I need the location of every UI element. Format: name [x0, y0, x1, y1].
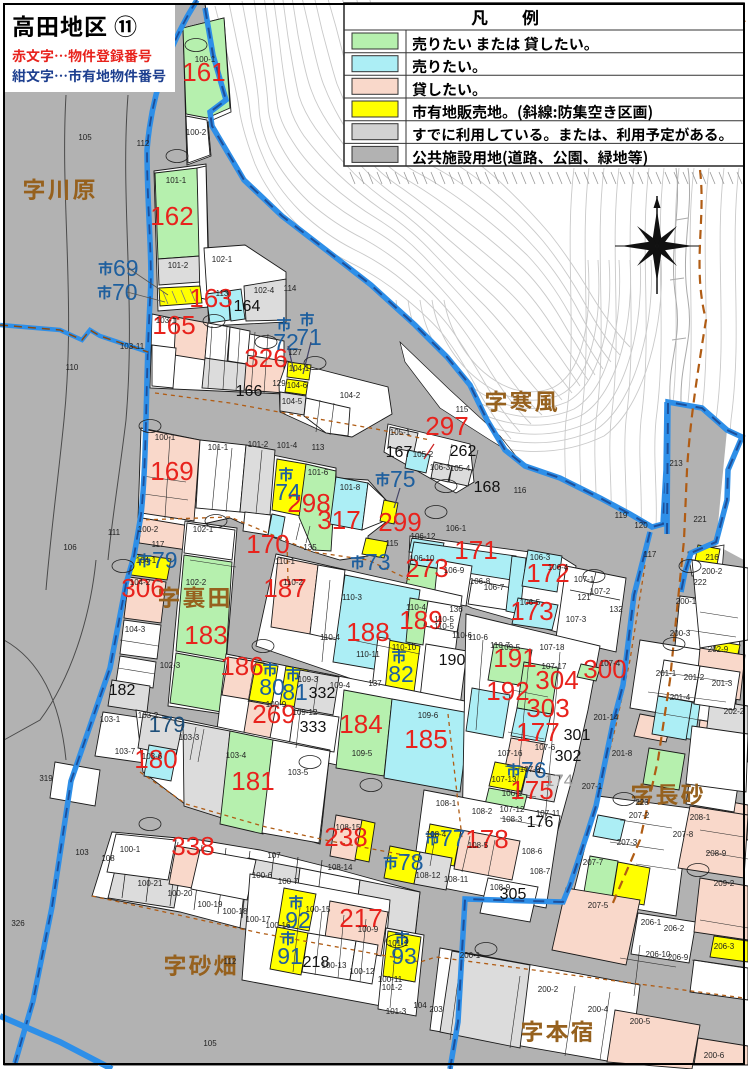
- svg-text:100-15: 100-15: [306, 905, 331, 914]
- svg-text:108-15: 108-15: [336, 823, 361, 832]
- svg-text:109-5: 109-5: [352, 749, 373, 758]
- svg-text:110-1: 110-1: [275, 557, 295, 566]
- svg-text:188: 188: [346, 617, 389, 647]
- svg-text:市: 市: [375, 469, 390, 490]
- svg-text:297: 297: [425, 411, 468, 441]
- svg-text:216: 216: [705, 553, 719, 562]
- svg-text:167: 167: [386, 444, 413, 461]
- svg-text:207-5: 207-5: [588, 901, 609, 910]
- svg-text:163: 163: [189, 283, 232, 313]
- svg-text:119: 119: [615, 511, 628, 520]
- svg-text:75: 75: [390, 466, 416, 492]
- svg-text:107-13: 107-13: [492, 775, 517, 784]
- svg-text:106-3: 106-3: [430, 463, 451, 472]
- svg-text:120: 120: [634, 521, 648, 530]
- svg-text:117: 117: [152, 540, 165, 549]
- svg-text:103-1: 103-1: [156, 316, 177, 325]
- svg-text:109-4: 109-4: [330, 681, 351, 690]
- svg-text:108-5: 108-5: [468, 841, 489, 850]
- svg-text:紺文字…市有地物件番号: 紺文字…市有地物件番号: [12, 66, 166, 86]
- svg-text:208-9: 208-9: [706, 849, 727, 858]
- svg-text:165: 165: [152, 310, 195, 340]
- svg-text:136: 136: [449, 605, 463, 614]
- svg-text:117: 117: [644, 550, 657, 559]
- svg-text:売りたい。: 売りたい。: [412, 56, 487, 77]
- svg-text:102-1: 102-1: [212, 255, 233, 264]
- svg-text:69: 69: [113, 255, 139, 281]
- svg-text:106-7: 106-7: [484, 583, 505, 592]
- svg-text:106-9: 106-9: [444, 566, 465, 575]
- svg-text:207-7: 207-7: [583, 858, 604, 867]
- svg-text:192: 192: [486, 676, 529, 706]
- svg-text:105-1: 105-1: [390, 428, 411, 437]
- svg-text:108-11: 108-11: [444, 875, 469, 884]
- svg-text:104-1: 104-1: [136, 556, 157, 565]
- svg-text:赤文字…物件登録番号: 赤文字…物件登録番号: [12, 46, 152, 66]
- svg-text:107-11: 107-11: [536, 809, 561, 818]
- svg-text:107-2: 107-2: [590, 587, 611, 596]
- svg-text:101-3: 101-3: [386, 1007, 407, 1016]
- svg-text:101-2: 101-2: [248, 440, 269, 449]
- svg-text:104-6: 104-6: [287, 381, 308, 390]
- svg-text:110-5: 110-5: [434, 622, 454, 631]
- svg-text:106-4: 106-4: [548, 563, 569, 572]
- svg-text:100-18: 100-18: [223, 907, 248, 916]
- svg-text:106: 106: [63, 543, 77, 552]
- svg-text:209-2: 209-2: [714, 879, 735, 888]
- svg-text:106-1: 106-1: [446, 524, 467, 533]
- svg-text:206-1: 206-1: [641, 918, 662, 927]
- svg-text:221: 221: [693, 515, 707, 524]
- svg-text:107-6: 107-6: [535, 743, 556, 752]
- svg-text:200-2: 200-2: [538, 985, 559, 994]
- svg-text:200-4: 200-4: [588, 1005, 609, 1014]
- svg-text:201-4: 201-4: [670, 693, 691, 702]
- svg-text:市: 市: [350, 552, 365, 573]
- svg-text:182: 182: [109, 682, 136, 699]
- svg-text:201-2: 201-2: [684, 673, 705, 682]
- svg-text:100-20: 100-20: [168, 889, 193, 898]
- svg-text:183: 183: [184, 620, 227, 650]
- svg-text:186: 186: [220, 651, 263, 681]
- svg-text:100-12: 100-12: [350, 967, 375, 976]
- svg-text:112: 112: [137, 139, 150, 148]
- svg-text:302: 302: [555, 748, 582, 765]
- svg-text:字本宿: 字本宿: [521, 1013, 596, 1047]
- svg-text:74: 74: [275, 479, 301, 505]
- svg-text:333: 333: [300, 719, 327, 736]
- svg-text:108-14: 108-14: [328, 863, 353, 872]
- svg-text:108-12: 108-12: [416, 871, 441, 880]
- svg-text:104: 104: [413, 1001, 427, 1010]
- svg-text:202-2: 202-2: [724, 707, 745, 716]
- svg-text:101-2: 101-2: [168, 261, 189, 270]
- svg-text:105: 105: [203, 1039, 217, 1048]
- svg-text:105-2: 105-2: [413, 450, 434, 459]
- svg-text:106-3: 106-3: [530, 553, 551, 562]
- svg-text:109-12: 109-12: [293, 708, 318, 717]
- svg-text:338: 338: [171, 831, 214, 861]
- svg-text:公共施設用地(道路、公園、緑地等): 公共施設用地(道路、公園、緑地等): [412, 147, 648, 168]
- svg-text:132: 132: [609, 605, 623, 614]
- svg-text:201-8: 201-8: [612, 749, 633, 758]
- svg-text:168: 168: [474, 479, 501, 496]
- svg-text:164: 164: [234, 298, 261, 315]
- svg-text:103-2: 103-2: [138, 711, 159, 720]
- svg-text:170: 170: [246, 529, 289, 559]
- svg-text:91: 91: [277, 943, 303, 969]
- svg-text:104-3: 104-3: [125, 625, 146, 634]
- svg-text:107-17: 107-17: [542, 662, 567, 671]
- svg-text:⑪: ⑪: [114, 8, 137, 42]
- svg-text:103: 103: [75, 848, 89, 857]
- svg-text:184: 184: [339, 709, 382, 739]
- svg-text:109-5: 109-5: [500, 643, 521, 652]
- svg-text:113: 113: [216, 289, 229, 298]
- svg-text:すでに利用している。または、利用予定がある。: すでに利用している。または、利用予定がある。: [412, 124, 733, 145]
- svg-text:200-1: 200-1: [460, 951, 481, 960]
- svg-text:売りたい または 貸したい。: 売りたい または 貸したい。: [412, 34, 599, 55]
- svg-text:103-6: 103-6: [142, 752, 163, 761]
- svg-text:71: 71: [296, 324, 322, 350]
- svg-text:103-4: 103-4: [226, 751, 247, 760]
- svg-text:114: 114: [284, 284, 297, 293]
- svg-text:市: 市: [98, 258, 113, 279]
- svg-text:107-18: 107-18: [540, 643, 565, 652]
- svg-text:109-6: 109-6: [418, 711, 439, 720]
- svg-text:108-2: 108-2: [472, 807, 493, 816]
- svg-text:104-1: 104-1: [289, 364, 310, 373]
- svg-text:108-1: 108-1: [436, 799, 457, 808]
- svg-text:137: 137: [368, 679, 382, 688]
- svg-text:108-9: 108-9: [490, 883, 511, 892]
- svg-text:80: 80: [259, 674, 285, 700]
- svg-text:凡 例: 凡 例: [471, 4, 539, 29]
- svg-text:100-2: 100-2: [186, 128, 207, 137]
- svg-text:201-3: 201-3: [712, 679, 733, 688]
- svg-text:101-1: 101-1: [166, 176, 187, 185]
- svg-text:100-6: 100-6: [252, 871, 273, 880]
- svg-text:174: 174: [545, 771, 573, 790]
- svg-text:206-2: 206-2: [664, 924, 685, 933]
- svg-text:262: 262: [450, 443, 477, 460]
- svg-text:106-10: 106-10: [410, 554, 435, 563]
- svg-text:200-1: 200-1: [676, 597, 697, 606]
- svg-text:201-1: 201-1: [656, 669, 677, 678]
- svg-text:223: 223: [635, 798, 649, 807]
- svg-text:110-4: 110-4: [320, 633, 340, 642]
- svg-text:109-3: 109-3: [298, 675, 319, 684]
- svg-text:326: 326: [11, 919, 25, 928]
- svg-text:301: 301: [564, 727, 591, 744]
- svg-text:101-1: 101-1: [208, 443, 229, 452]
- svg-text:101-8: 101-8: [340, 483, 361, 492]
- svg-text:200-6: 200-6: [704, 1051, 725, 1060]
- svg-text:109-9: 109-9: [266, 700, 287, 709]
- svg-text:73: 73: [365, 549, 391, 575]
- svg-text:127: 127: [288, 348, 302, 357]
- svg-text:213: 213: [669, 459, 683, 468]
- svg-text:104-5: 104-5: [282, 397, 303, 406]
- svg-text:201-14: 201-14: [594, 713, 619, 722]
- svg-text:116: 116: [514, 486, 527, 495]
- svg-text:200-2: 200-2: [702, 567, 723, 576]
- svg-text:206-3: 206-3: [714, 942, 735, 951]
- svg-text:108: 108: [101, 854, 115, 863]
- svg-text:110-11: 110-11: [356, 650, 380, 659]
- svg-text:222: 222: [693, 578, 707, 587]
- svg-text:110: 110: [66, 363, 79, 372]
- svg-text:319: 319: [39, 774, 53, 783]
- svg-text:102-2: 102-2: [186, 578, 207, 587]
- svg-text:200-3: 200-3: [670, 629, 691, 638]
- svg-text:169: 169: [150, 456, 193, 486]
- svg-text:100-1: 100-1: [195, 55, 216, 64]
- svg-text:106-12: 106-12: [411, 532, 436, 541]
- svg-text:202-9: 202-9: [708, 645, 729, 654]
- svg-text:171: 171: [454, 535, 497, 565]
- svg-text:市有地販売地。(斜線:防集空き区画): 市有地販売地。(斜線:防集空き区画): [412, 102, 653, 123]
- svg-text:200-5: 200-5: [630, 1017, 651, 1026]
- svg-text:100-21: 100-21: [138, 879, 163, 888]
- svg-text:207-2: 207-2: [629, 811, 650, 820]
- svg-text:206-9: 206-9: [668, 953, 689, 962]
- svg-text:70: 70: [112, 279, 138, 305]
- svg-text:104-2: 104-2: [340, 391, 361, 400]
- svg-text:107: 107: [267, 851, 281, 860]
- svg-text:100-1: 100-1: [155, 433, 176, 442]
- svg-text:207-8: 207-8: [673, 830, 694, 839]
- svg-text:115: 115: [456, 405, 469, 414]
- svg-text:105: 105: [78, 133, 92, 142]
- svg-text:101-2: 101-2: [382, 983, 403, 992]
- svg-text:103-11: 103-11: [120, 342, 145, 351]
- svg-text:110-2: 110-2: [283, 578, 303, 587]
- svg-text:市: 市: [383, 852, 398, 873]
- svg-text:高田地区: 高田地区: [12, 8, 108, 42]
- svg-text:字川原: 字川原: [23, 171, 98, 205]
- svg-text:103-1: 103-1: [100, 715, 121, 724]
- svg-text:108-6: 108-6: [522, 847, 543, 856]
- svg-text:106-5: 106-5: [520, 598, 541, 607]
- svg-text:106-1: 106-1: [502, 789, 523, 798]
- svg-text:115: 115: [386, 539, 399, 548]
- svg-text:166: 166: [236, 383, 263, 400]
- svg-text:162: 162: [150, 201, 193, 231]
- svg-text:107-16: 107-16: [498, 749, 523, 758]
- svg-text:108-7: 108-7: [530, 867, 551, 876]
- svg-text:317: 317: [317, 505, 360, 535]
- svg-text:181: 181: [231, 766, 274, 796]
- svg-text:207-1: 207-1: [582, 782, 603, 791]
- svg-text:107-4: 107-4: [600, 659, 621, 668]
- svg-text:108-3: 108-3: [502, 815, 523, 824]
- svg-text:112: 112: [224, 957, 237, 966]
- svg-text:208-1: 208-1: [690, 813, 711, 822]
- svg-text:字寒風: 字寒風: [485, 383, 560, 417]
- svg-text:185: 185: [404, 724, 447, 754]
- svg-text:100-2: 100-2: [138, 525, 159, 534]
- svg-text:100-13: 100-13: [322, 961, 347, 970]
- svg-text:市: 市: [97, 282, 112, 303]
- svg-text:107-12: 107-12: [500, 805, 525, 814]
- svg-text:111: 111: [108, 528, 121, 537]
- svg-text:108-4: 108-4: [426, 830, 447, 839]
- svg-text:110-6: 110-6: [468, 633, 488, 642]
- svg-text:101-4: 101-4: [277, 441, 298, 450]
- svg-text:110-4: 110-4: [406, 603, 426, 612]
- svg-text:203: 203: [429, 1005, 443, 1014]
- svg-text:100-7: 100-7: [278, 877, 299, 886]
- svg-text:190: 190: [439, 652, 466, 669]
- svg-text:100-19: 100-19: [198, 900, 223, 909]
- svg-text:102-3: 102-3: [160, 661, 181, 670]
- svg-text:113: 113: [312, 443, 325, 452]
- svg-text:107-3: 107-3: [566, 615, 587, 624]
- svg-text:101-6: 101-6: [308, 468, 329, 477]
- svg-text:103-5: 103-5: [288, 768, 309, 777]
- svg-text:100-9: 100-9: [358, 925, 379, 934]
- svg-text:121: 121: [577, 593, 591, 602]
- svg-text:103-7: 103-7: [115, 747, 136, 756]
- svg-text:135: 135: [303, 543, 317, 552]
- svg-text:82: 82: [388, 661, 414, 687]
- svg-text:貸したい。: 貸したい。: [412, 79, 487, 100]
- svg-text:100-1: 100-1: [120, 845, 141, 854]
- svg-text:100-16: 100-16: [266, 921, 291, 930]
- svg-text:110-10: 110-10: [392, 643, 417, 652]
- svg-text:104-2: 104-2: [130, 578, 151, 587]
- svg-text:110-3: 110-3: [342, 593, 362, 602]
- svg-text:129: 129: [272, 379, 286, 388]
- svg-text:103-3: 103-3: [179, 733, 200, 742]
- svg-text:107-9: 107-9: [520, 765, 541, 774]
- svg-text:105-4: 105-4: [450, 464, 471, 473]
- svg-text:207-3: 207-3: [617, 838, 638, 847]
- svg-text:102-4: 102-4: [254, 286, 275, 295]
